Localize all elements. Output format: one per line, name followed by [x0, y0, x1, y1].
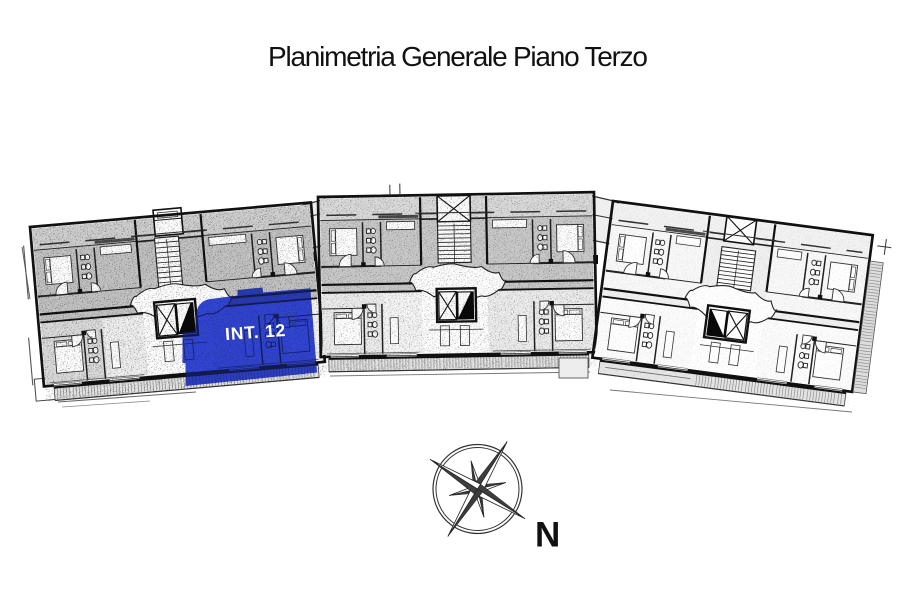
svg-text:INT. 12: INT. 12	[224, 320, 286, 344]
svg-text:Planimetria Generale Piano Ter: Planimetria Generale Piano Terzo	[268, 41, 648, 72]
svg-text:N: N	[535, 516, 560, 555]
